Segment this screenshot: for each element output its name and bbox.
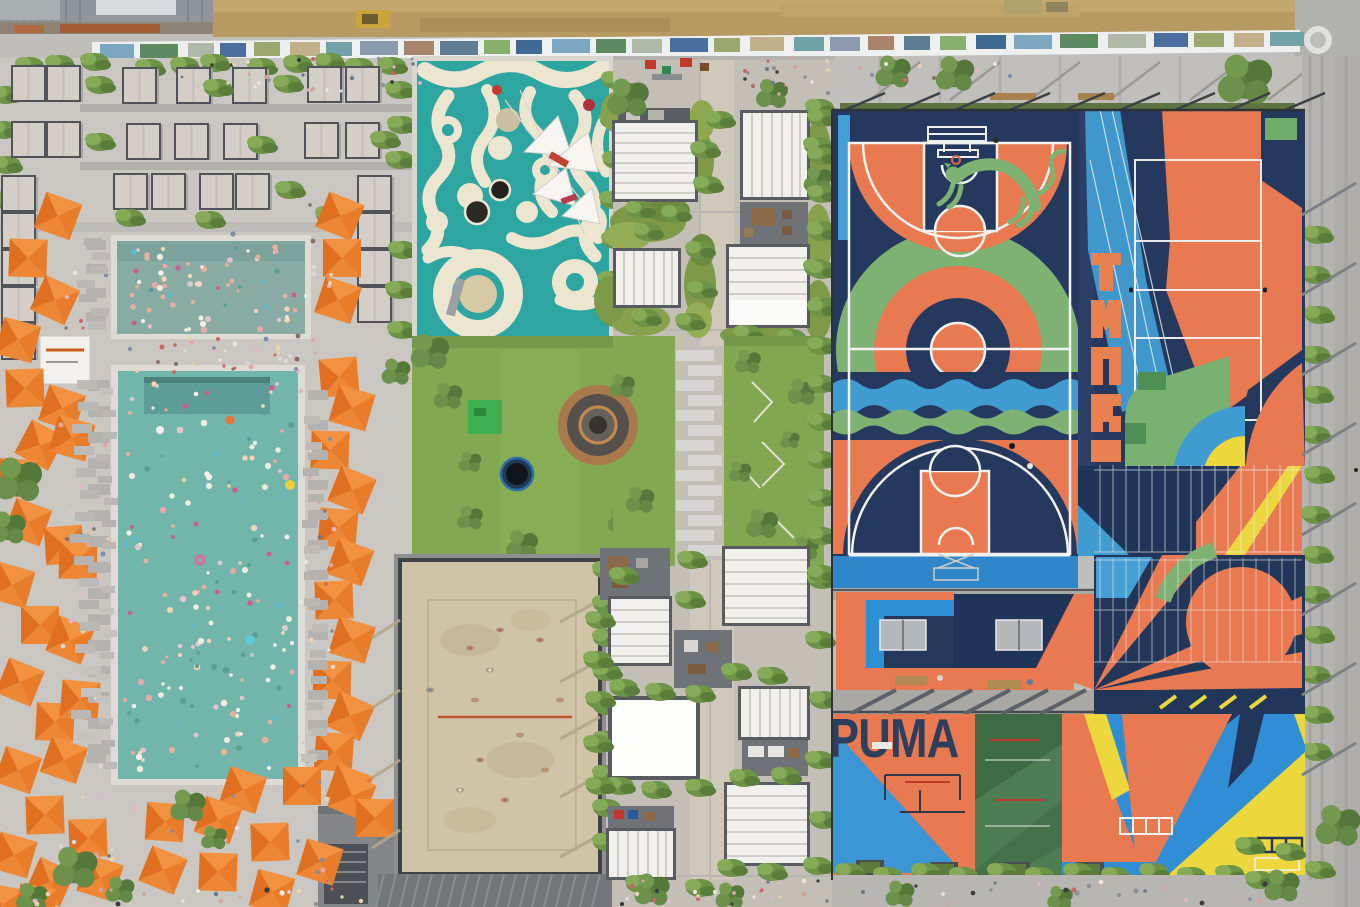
svg-text:PUMA: PUMA (829, 707, 958, 769)
